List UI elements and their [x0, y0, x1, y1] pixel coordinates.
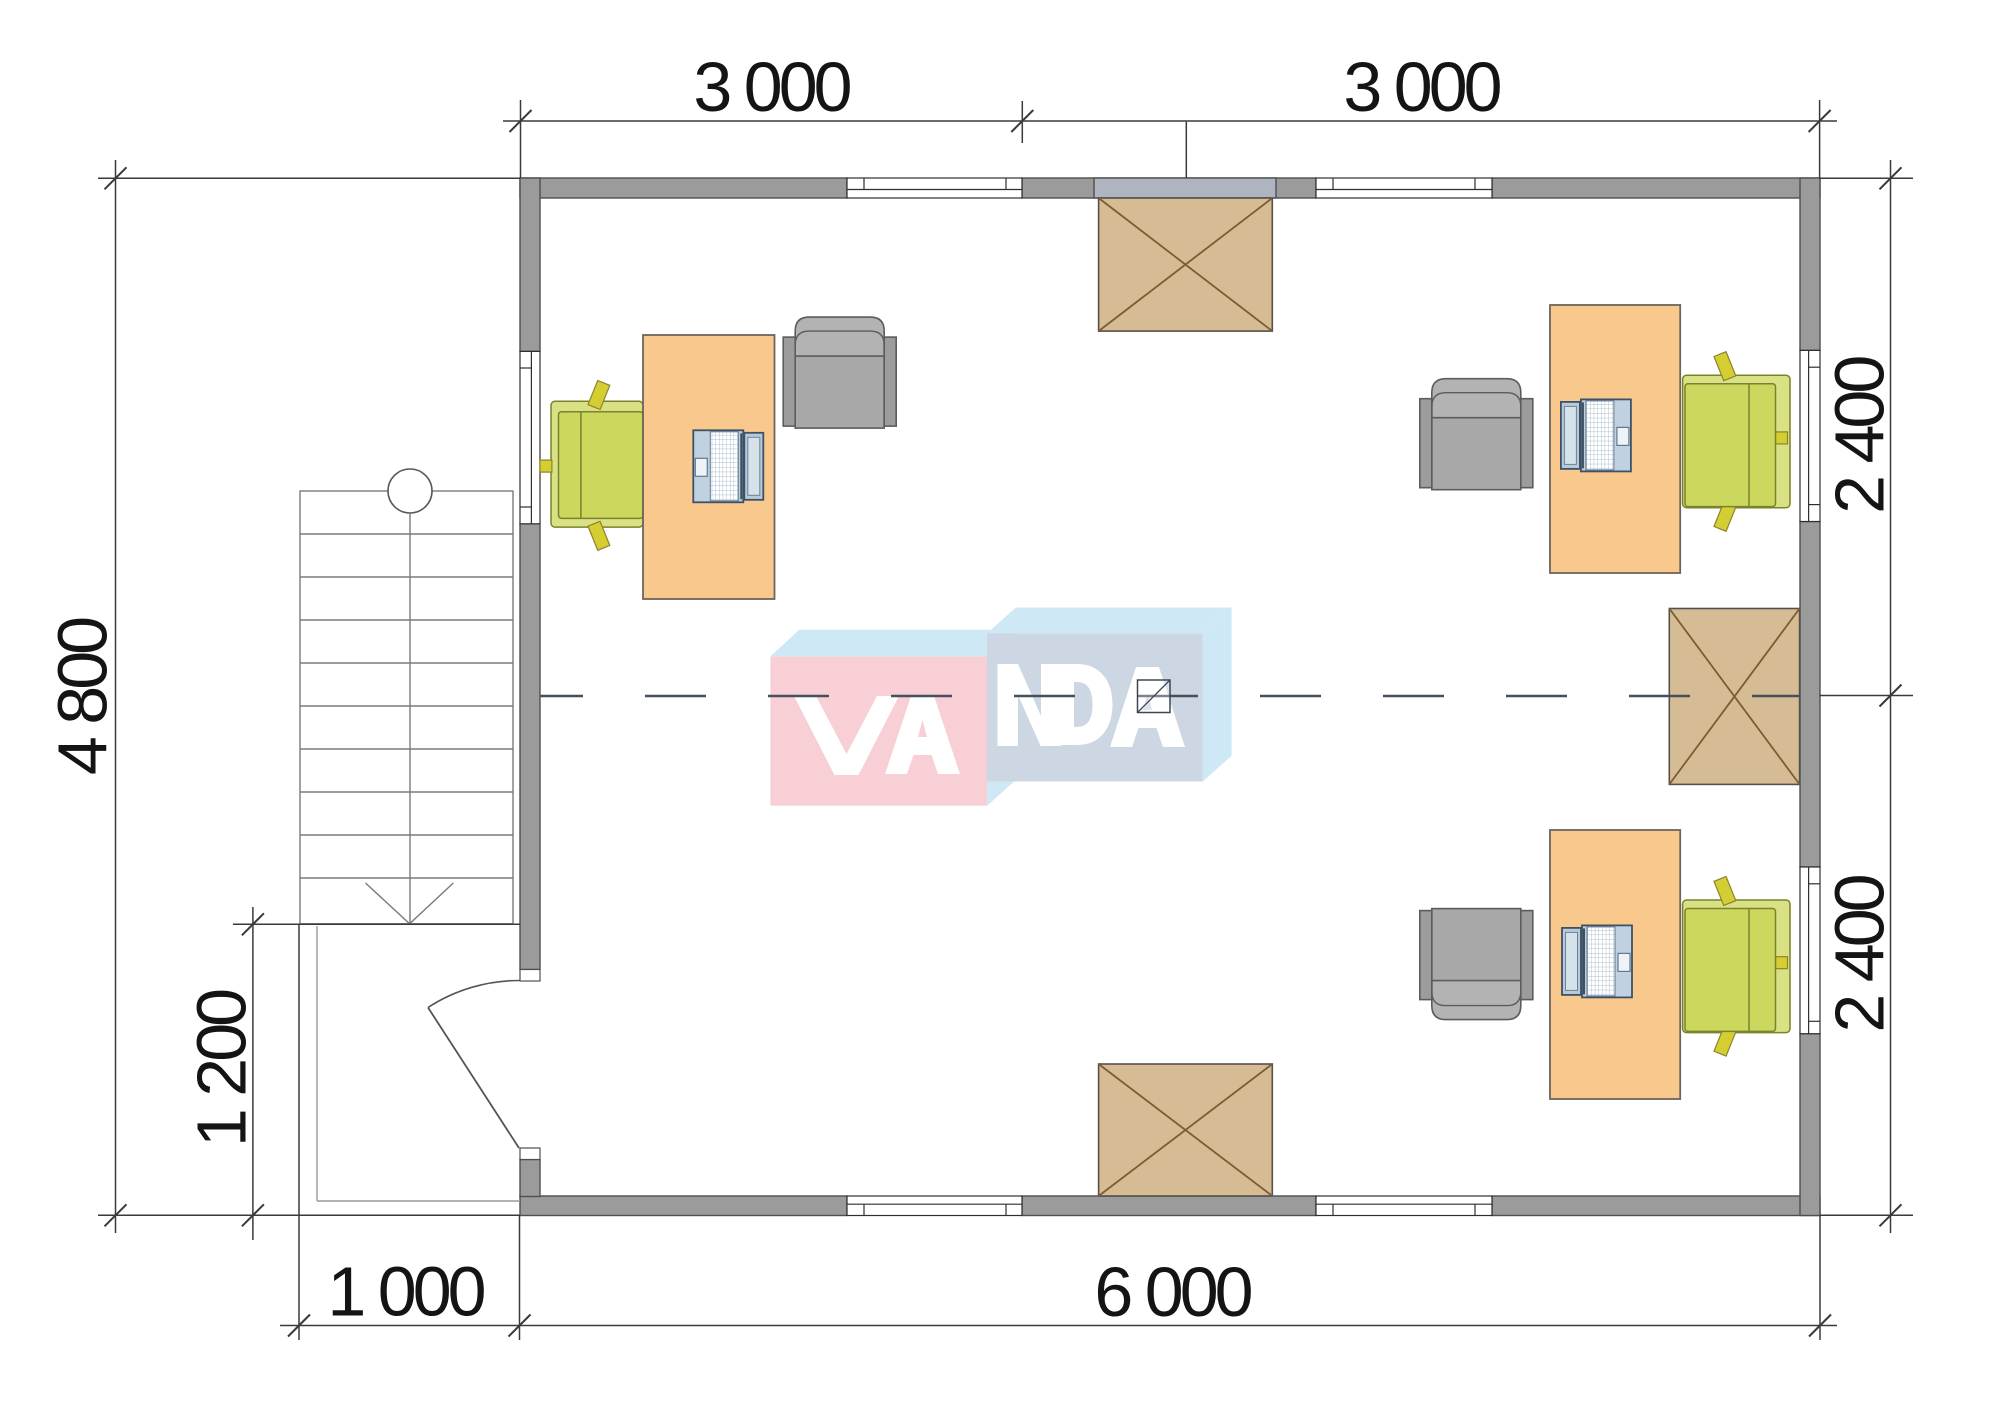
svg-text:4 800: 4 800	[44, 618, 122, 775]
svg-text:1 000: 1 000	[327, 1253, 484, 1331]
svg-text:3 000: 3 000	[693, 48, 850, 126]
svg-text:1 200: 1 200	[182, 990, 260, 1147]
svg-text:2 400: 2 400	[1821, 875, 1899, 1032]
svg-text:6 000: 6 000	[1094, 1253, 1251, 1331]
svg-text:2 400: 2 400	[1821, 357, 1899, 514]
svg-text:3 000: 3 000	[1343, 48, 1500, 126]
